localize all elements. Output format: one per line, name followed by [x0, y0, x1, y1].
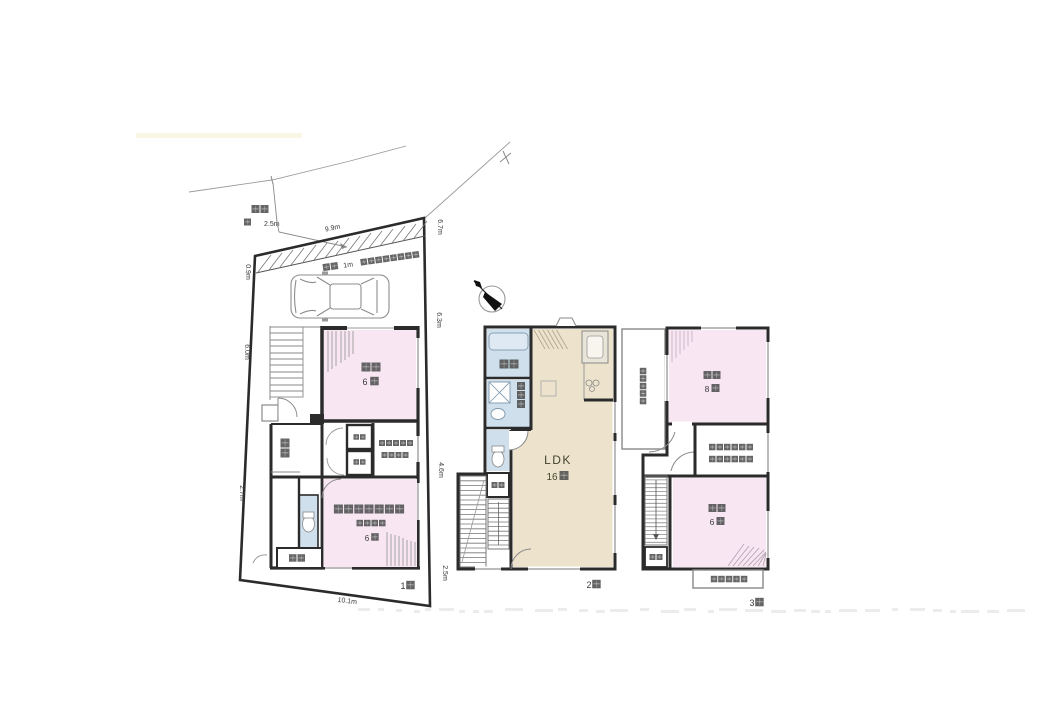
- svg-text:8: 8: [705, 384, 710, 394]
- svg-text:2.7m: 2.7m: [238, 485, 245, 501]
- svg-text:6: 6: [365, 534, 370, 543]
- svg-text:0.9m: 0.9m: [244, 264, 251, 280]
- svg-text:4.6m: 4.6m: [437, 462, 444, 478]
- svg-text:LDK: LDK: [544, 453, 572, 467]
- svg-text:3: 3: [749, 598, 754, 608]
- svg-text:1m: 1m: [343, 261, 354, 269]
- svg-text:6.3m: 6.3m: [435, 312, 442, 328]
- svg-text:6: 6: [362, 377, 367, 387]
- svg-text:16: 16: [546, 472, 558, 483]
- svg-text:1: 1: [400, 581, 405, 591]
- svg-text:6.7m: 6.7m: [436, 219, 443, 235]
- svg-text:6: 6: [710, 517, 715, 527]
- svg-text:2: 2: [586, 580, 591, 590]
- svg-text:2.5m: 2.5m: [441, 565, 448, 581]
- svg-text:6.0m: 6.0m: [243, 344, 250, 360]
